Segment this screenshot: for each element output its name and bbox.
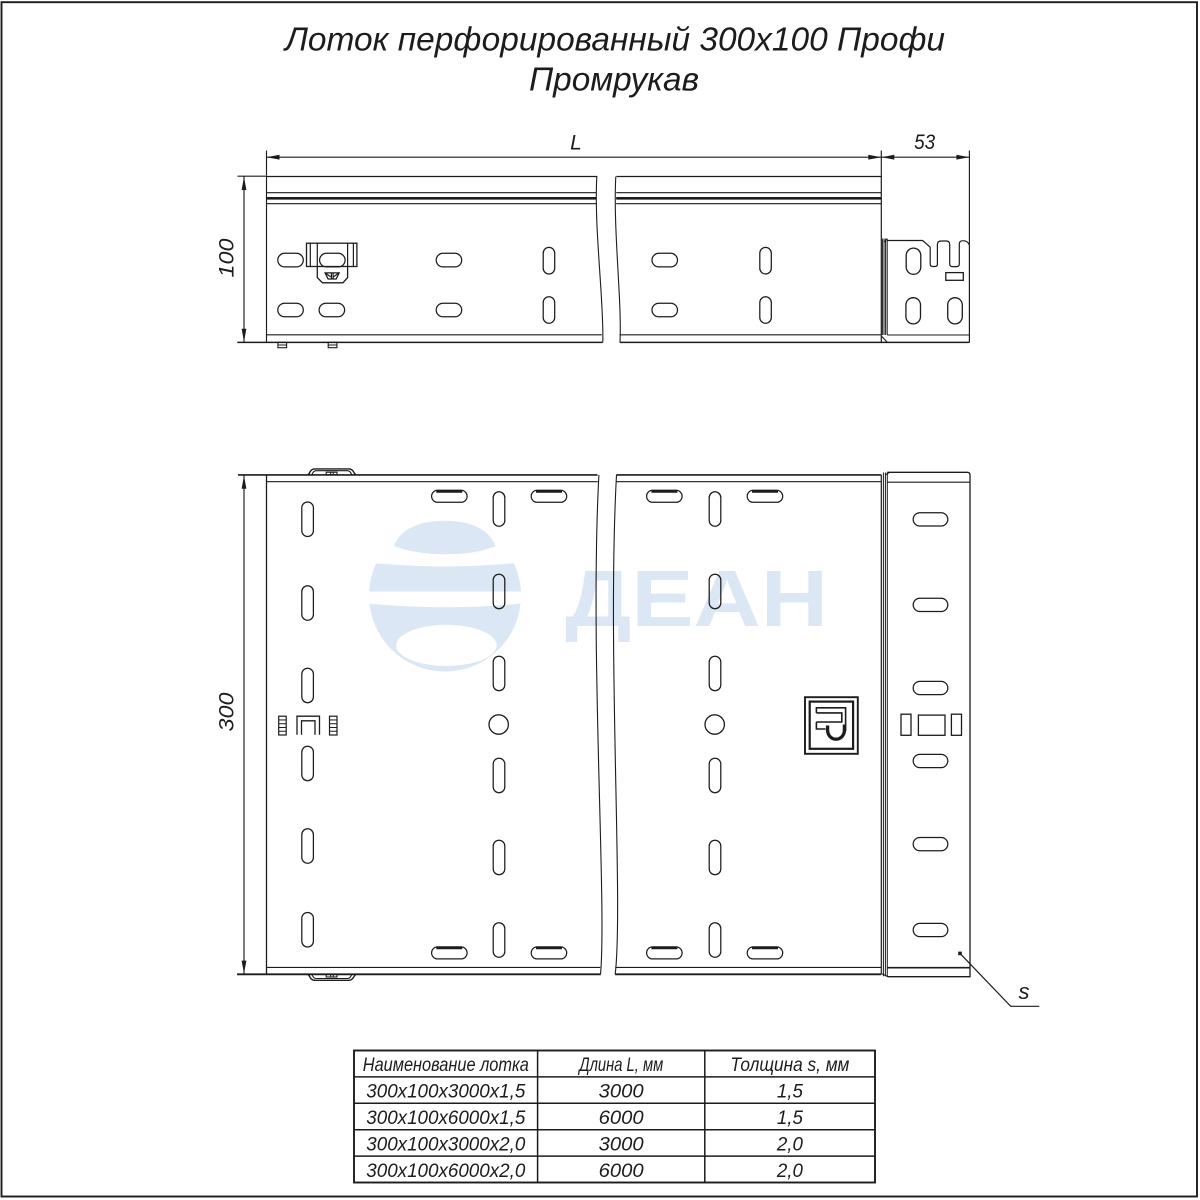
svg-text:2,0: 2,0 (776, 1133, 803, 1155)
svg-text:300х100х3000х2,0: 300х100х3000х2,0 (366, 1133, 525, 1155)
svg-text:1,5: 1,5 (777, 1081, 803, 1103)
svg-text:Толщина s, мм: Толщина s, мм (730, 1054, 849, 1076)
svg-text:Промрукав: Промрукав (529, 60, 699, 97)
svg-text:300х100х3000х1,5: 300х100х3000х1,5 (366, 1081, 525, 1103)
svg-text:300: 300 (216, 692, 239, 731)
svg-text:2,0: 2,0 (776, 1160, 803, 1182)
svg-text:Лоток перфорированный 300х100: Лоток перфорированный 300х100 Профи (283, 20, 945, 57)
svg-text:ДЕАН: ДЕАН (565, 554, 828, 643)
svg-text:6000: 6000 (599, 1107, 644, 1129)
svg-text:L: L (570, 132, 582, 155)
svg-text:6000: 6000 (599, 1160, 644, 1182)
svg-text:3000: 3000 (599, 1081, 644, 1103)
svg-text:1,5: 1,5 (777, 1107, 803, 1129)
svg-text:53: 53 (914, 131, 935, 154)
svg-text:300х100х6000х2,0: 300х100х6000х2,0 (366, 1160, 525, 1182)
svg-text:3000: 3000 (599, 1133, 644, 1155)
svg-text:Наименование лотка: Наименование лотка (363, 1054, 529, 1076)
svg-text:Длина L, мм: Длина L, мм (578, 1054, 664, 1076)
svg-text:100: 100 (216, 238, 239, 277)
svg-text:s: s (1019, 979, 1030, 1004)
svg-text:300х100х6000х1,5: 300х100х6000х1,5 (366, 1107, 525, 1129)
